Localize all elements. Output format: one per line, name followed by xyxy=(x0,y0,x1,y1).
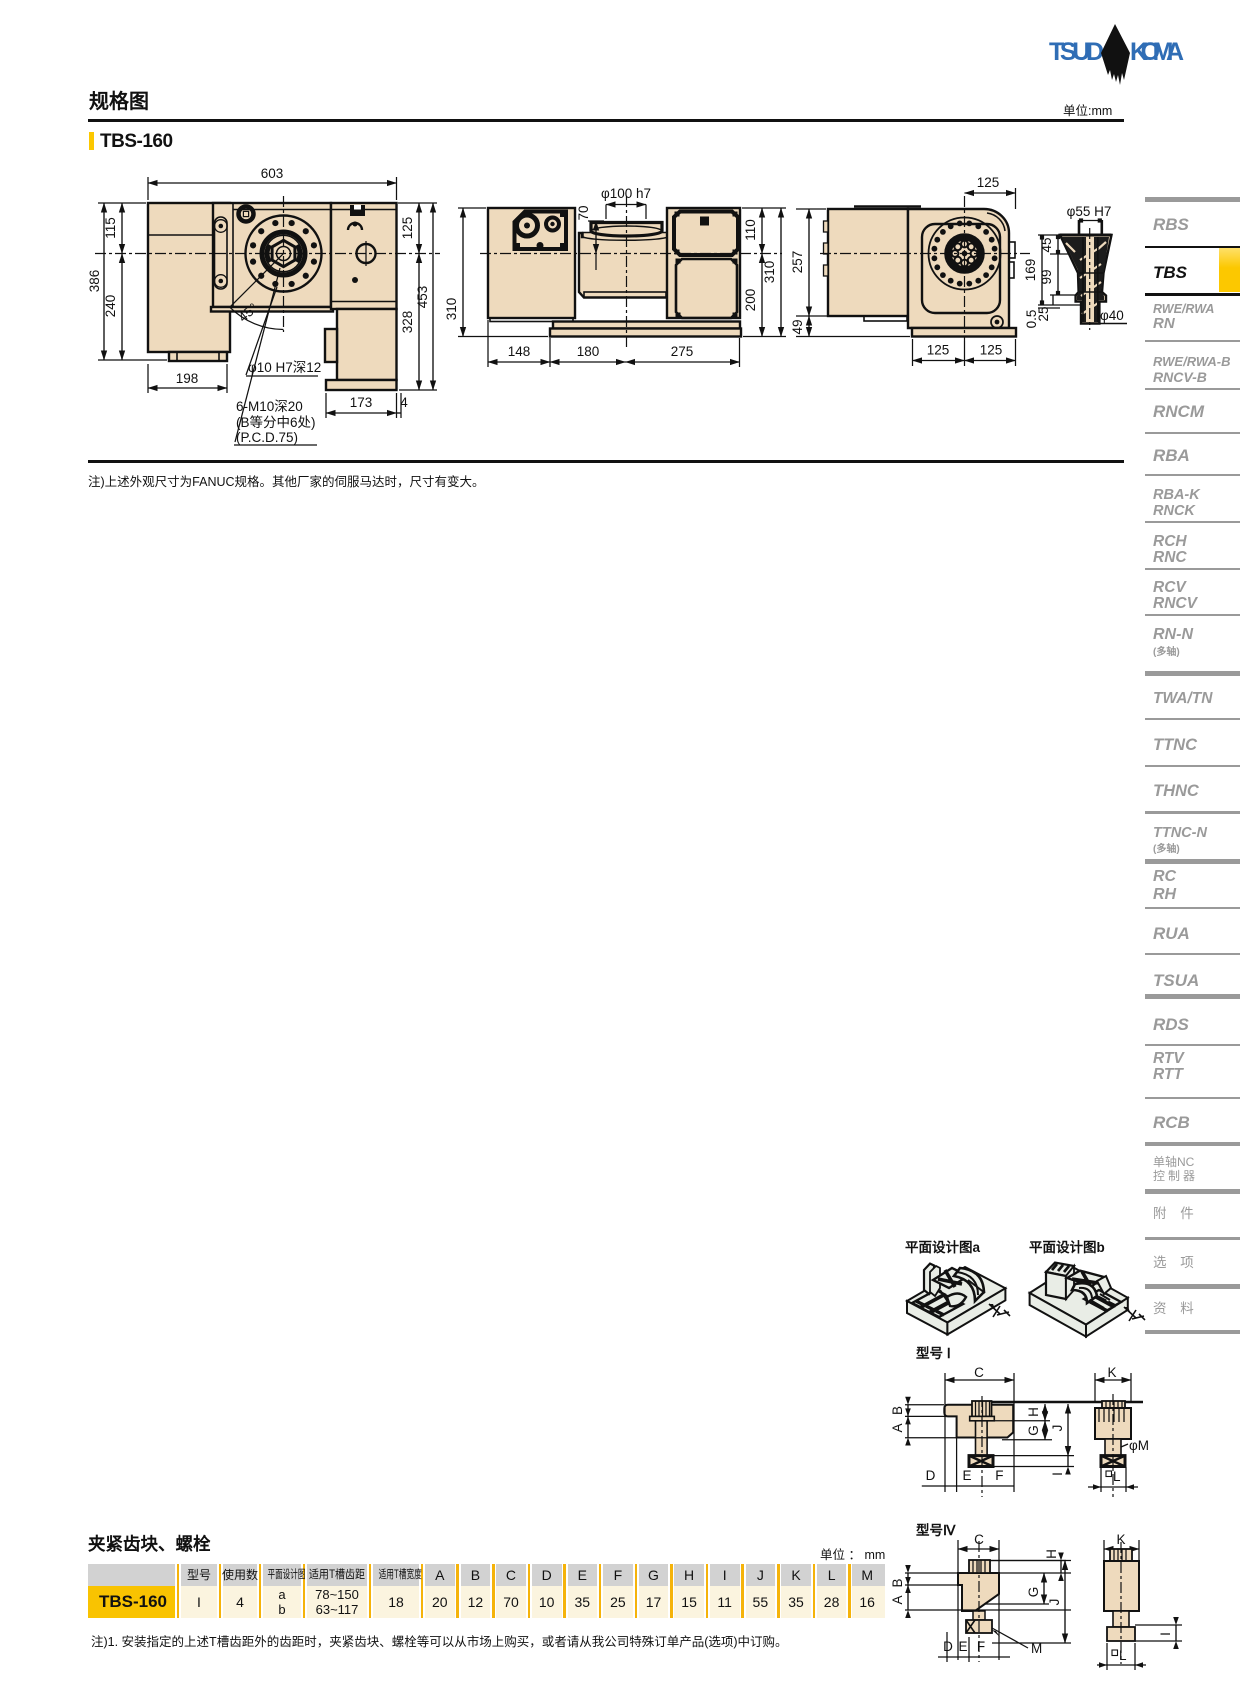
svg-text:A: A xyxy=(890,1423,905,1432)
svg-text:70: 70 xyxy=(576,205,591,220)
svg-text:257: 257 xyxy=(790,251,805,274)
svg-text:(B等分中6处): (B等分中6处) xyxy=(236,414,316,430)
svg-text:49: 49 xyxy=(790,319,805,334)
svg-text:F: F xyxy=(995,1468,1003,1483)
svg-text:386: 386 xyxy=(87,270,102,293)
svg-text:603: 603 xyxy=(261,166,284,181)
svg-text:G: G xyxy=(1026,1425,1041,1436)
svg-text:125: 125 xyxy=(977,175,1000,190)
svg-text:200: 200 xyxy=(743,289,758,312)
svg-text:125: 125 xyxy=(927,343,950,358)
svg-text:B: B xyxy=(890,1406,905,1415)
svg-text:240: 240 xyxy=(103,295,118,318)
svg-text:C: C xyxy=(974,1365,984,1380)
svg-text:6-M10深20: 6-M10深20 xyxy=(236,399,303,414)
svg-text:型号Ⅳ: 型号Ⅳ xyxy=(916,1522,957,1538)
svg-text:169: 169 xyxy=(1023,259,1038,282)
svg-text:φ55 H7: φ55 H7 xyxy=(1067,204,1112,219)
svg-text:L: L xyxy=(1119,1648,1127,1663)
svg-text:φ40: φ40 xyxy=(1100,308,1124,323)
svg-text:A: A xyxy=(890,1595,905,1604)
svg-text:125: 125 xyxy=(400,217,415,240)
svg-text:D: D xyxy=(926,1468,936,1483)
svg-text:4: 4 xyxy=(400,395,408,410)
svg-text:H: H xyxy=(1026,1407,1041,1417)
svg-text:B: B xyxy=(890,1578,905,1587)
svg-text:99: 99 xyxy=(1039,269,1054,284)
svg-text:G: G xyxy=(1026,1587,1041,1598)
svg-text:H: H xyxy=(1044,1549,1059,1559)
svg-text:J: J xyxy=(1050,1425,1065,1432)
svg-text:110: 110 xyxy=(743,219,758,241)
svg-text:115: 115 xyxy=(103,217,118,239)
svg-text:275: 275 xyxy=(671,344,694,359)
svg-text:180: 180 xyxy=(577,344,600,359)
svg-text:0.5: 0.5 xyxy=(1024,310,1039,329)
svg-text:φ10 H7深12: φ10 H7深12 xyxy=(248,360,321,375)
svg-text:φ100 h7: φ100 h7 xyxy=(601,186,651,201)
svg-text:310: 310 xyxy=(762,261,777,284)
svg-text:E: E xyxy=(958,1639,967,1654)
svg-text:E: E xyxy=(962,1468,971,1483)
svg-text:F: F xyxy=(977,1639,985,1654)
svg-text:K: K xyxy=(1107,1365,1116,1380)
svg-text:173: 173 xyxy=(350,395,373,410)
svg-text:D: D xyxy=(943,1639,953,1654)
svg-text:198: 198 xyxy=(176,371,199,386)
svg-text:L: L xyxy=(1113,1469,1121,1484)
svg-text:148: 148 xyxy=(508,344,531,359)
svg-text:M: M xyxy=(1031,1641,1042,1656)
svg-text:125: 125 xyxy=(980,343,1003,358)
svg-text:平面设计图b: 平面设计图b xyxy=(1029,1239,1105,1255)
svg-text:型号 Ⅰ: 型号 Ⅰ xyxy=(916,1345,951,1361)
svg-text:328: 328 xyxy=(400,311,415,334)
svg-text:45: 45 xyxy=(1039,237,1054,252)
svg-text:453: 453 xyxy=(415,286,430,309)
svg-text:310: 310 xyxy=(444,298,459,321)
svg-text:(P.C.D.75): (P.C.D.75) xyxy=(236,430,298,445)
svg-text:I: I xyxy=(1050,1472,1065,1476)
svg-text:J: J xyxy=(1047,1599,1062,1606)
svg-text:平面设计图a: 平面设计图a xyxy=(905,1239,980,1255)
svg-text:φM: φM xyxy=(1129,1438,1149,1453)
svg-text:I: I xyxy=(1158,1632,1173,1636)
